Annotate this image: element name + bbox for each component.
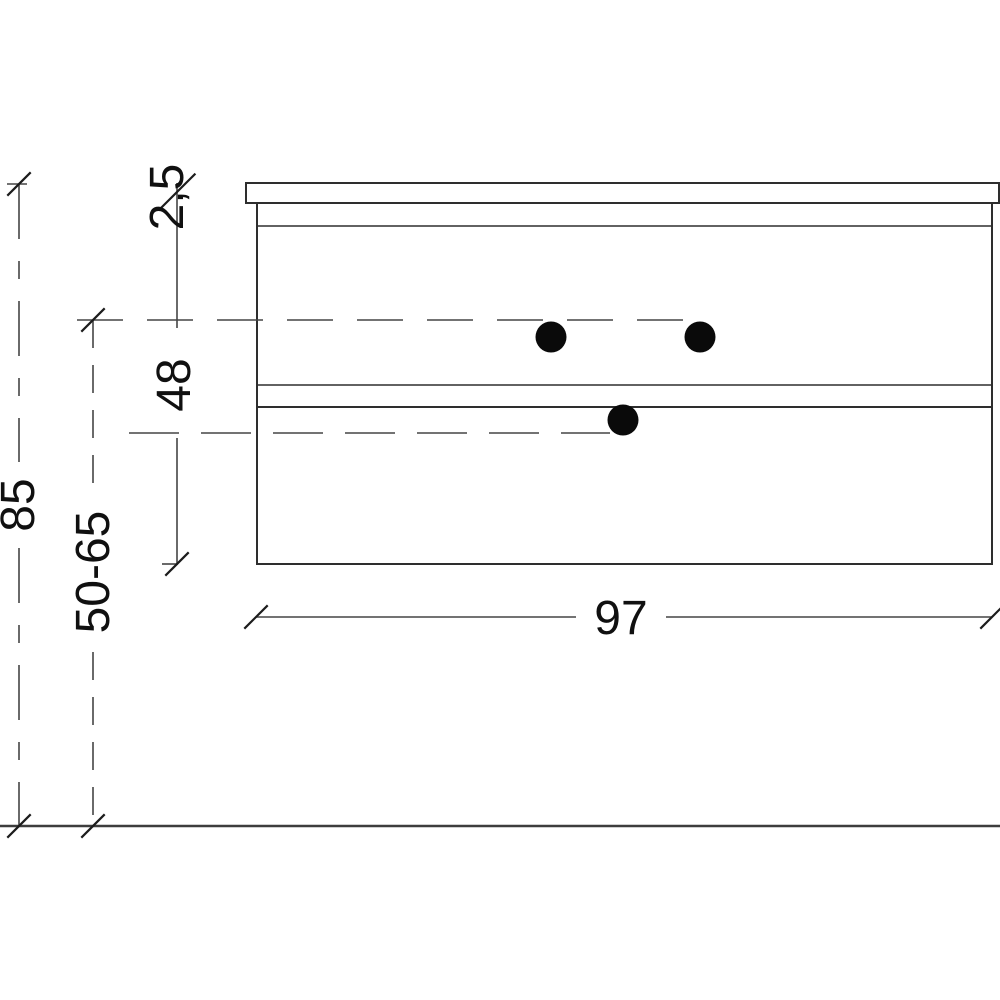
label-countertop-thickness: 2,5 xyxy=(141,164,194,231)
mounting-hole-dot-left xyxy=(536,322,567,353)
technical-drawing-canvas: 2,5 48 85 50-65 97 xyxy=(0,0,1000,1000)
label-cabinet-height: 48 xyxy=(148,358,201,411)
label-total-height: 85 xyxy=(0,478,45,531)
cabinet-body-outline xyxy=(257,203,992,564)
mounting-hole-dot-right xyxy=(685,322,716,353)
countertop-outline xyxy=(246,183,999,203)
mounting-hole-dot-lower xyxy=(608,405,639,436)
label-width: 97 xyxy=(594,592,647,645)
dimension-drawing-svg: 2,5 48 85 50-65 97 xyxy=(0,0,1000,1000)
label-mounting-height-range: 50-65 xyxy=(67,511,120,634)
